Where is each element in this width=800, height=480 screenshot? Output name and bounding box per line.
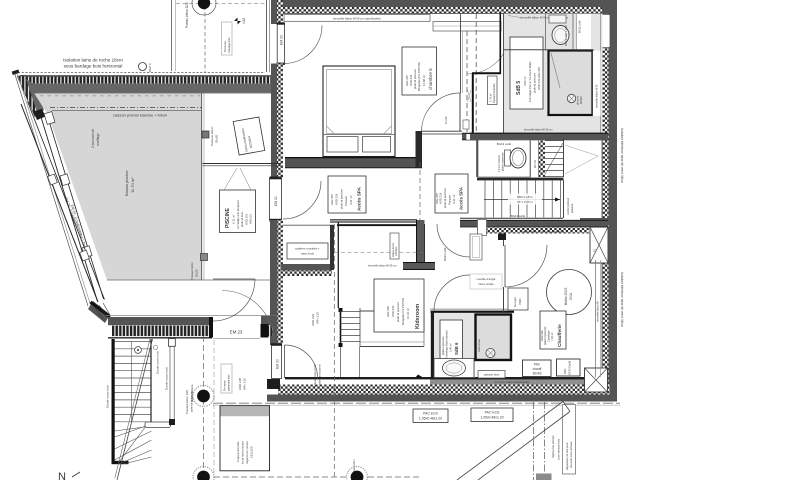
svg-text:EM 22: EM 22 bbox=[280, 35, 284, 45]
svg-text:11.70 m²: 11.70 m² bbox=[130, 177, 135, 193]
svg-text:Groupe: Groupe bbox=[513, 297, 517, 307]
svg-text:BA13 collé: BA13 collé bbox=[497, 142, 512, 146]
svg-text:HSD 235: HSD 235 bbox=[238, 377, 242, 390]
svg-text:12.88 m²: 12.88 m² bbox=[422, 75, 426, 86]
svg-text:EM 23: EM 23 bbox=[230, 330, 243, 335]
svg-text:N: N bbox=[58, 471, 66, 480]
svg-text:recouvrir zone terrasse: recouvrir zone terrasse bbox=[569, 441, 573, 468]
svg-text:152x120: 152x120 bbox=[250, 446, 254, 458]
svg-text:tervueille bâton fill 90 cm: tervueille bâton fill 90 cm bbox=[524, 128, 553, 132]
svg-text:60x46: 60x46 bbox=[533, 372, 542, 376]
svg-text:caisson promat étanche + Miroi: caisson promat étanche + Miroir bbox=[113, 114, 168, 118]
svg-text:HSD 236: HSD 236 bbox=[540, 330, 544, 341]
svg-text:HRv 205: HRv 205 bbox=[386, 306, 390, 317]
svg-text:Garde corps bois: Garde corps bois bbox=[156, 351, 160, 374]
svg-text:16.32 m²: 16.32 m² bbox=[406, 308, 410, 319]
svg-text:Poteaux béton: Poteaux béton bbox=[210, 126, 214, 146]
svg-text:Parquet: Parquet bbox=[344, 196, 348, 206]
svg-text:plafond peinture: plafond peinture bbox=[533, 72, 537, 93]
svg-text:HSD 230: HSD 230 bbox=[391, 305, 395, 317]
svg-text:carré d'eau: carré d'eau bbox=[477, 339, 481, 352]
svg-text:HSD 236: HSD 236 bbox=[335, 193, 339, 205]
svg-text:20x20: 20x20 bbox=[215, 134, 219, 143]
svg-text:Chaufferie: Chaufferie bbox=[557, 324, 562, 347]
svg-text:BA13 collé: BA13 collé bbox=[443, 247, 447, 261]
svg-text:DEP 6: DEP 6 bbox=[148, 63, 152, 72]
svg-text:PAC: PAC bbox=[563, 368, 567, 374]
svg-text:PAC ECS: PAC ECS bbox=[423, 412, 438, 416]
svg-text:4.62: 4.62 bbox=[242, 18, 246, 24]
svg-text:4.80 m²: 4.80 m² bbox=[523, 76, 527, 86]
svg-text:HSD 236: HSD 236 bbox=[409, 74, 413, 86]
svg-text:bardage bois: bardage bois bbox=[227, 37, 231, 53]
svg-text:4.41 m²: 4.41 m² bbox=[349, 195, 353, 205]
svg-text:plafond peinture: plafond peinture bbox=[340, 188, 344, 209]
svg-text:ECS 53x38: ECS 53x38 bbox=[568, 360, 572, 375]
svg-text:HRv 225: HRv 225 bbox=[330, 194, 334, 205]
svg-text:Frappe d'ecolle: Frappe d'ecolle bbox=[236, 441, 240, 462]
svg-text:1.05x0.48x1.20: 1.05x0.48x1.20 bbox=[419, 417, 442, 421]
svg-text:Accès SPA: Accès SPA bbox=[459, 186, 464, 210]
svg-text:3.40 m²: 3.40 m² bbox=[449, 343, 453, 352]
svg-text:combles: combles bbox=[395, 246, 398, 256]
svg-text:Poteau béton D20: Poteau béton D20 bbox=[185, 2, 189, 28]
svg-text:plafond peinture: plafond peinture bbox=[396, 301, 400, 322]
svg-text:plafond peinture: plafond peinture bbox=[443, 187, 447, 208]
svg-text:Isolation intérieure laine de: Isolation intérieure laine de verre 16cm bbox=[620, 128, 624, 183]
svg-text:regard sur verres: regard sur verres bbox=[245, 441, 249, 464]
svg-text:PAC: PAC bbox=[534, 363, 541, 367]
svg-text:Ballon ECS: Ballon ECS bbox=[564, 287, 568, 305]
svg-text:tervueille bâton fill 90: tervueille bâton fill 90 bbox=[596, 84, 599, 108]
svg-text:plafond bois: plafond bois bbox=[240, 211, 244, 227]
svg-text:PISCINE: PISCINE bbox=[225, 207, 231, 228]
svg-text:WC 16: WC 16 bbox=[533, 160, 537, 168]
svg-text:Kidsroom: Kidsroom bbox=[415, 304, 421, 329]
svg-text:patemand bois: patemand bois bbox=[228, 374, 231, 391]
svg-text:reprise mur existant: reprise mur existant bbox=[551, 435, 555, 458]
svg-text:tervueille bâton fill 90 cm: tervueille bâton fill 90 cm bbox=[368, 264, 397, 268]
svg-text:banc bois: banc bois bbox=[301, 252, 314, 256]
svg-text:Garde corps bois: Garde corps bois bbox=[106, 385, 110, 408]
svg-text:PL: PL bbox=[593, 248, 597, 252]
svg-text:Carrelage: Carrelage bbox=[547, 330, 551, 342]
svg-text:Garde corps bois: Garde corps bois bbox=[165, 367, 169, 390]
svg-text:2 bouches de: 2 bouches de bbox=[91, 129, 95, 148]
svg-text:Poteaux béton D20: Poteaux béton D20 bbox=[185, 390, 189, 414]
svg-text:Isolation laine de roche 18cm: Isolation laine de roche 18cm bbox=[63, 58, 123, 63]
svg-text:HRv 215: HRv 215 bbox=[243, 378, 247, 390]
svg-text:HSD 236: HSD 236 bbox=[439, 192, 443, 204]
svg-text:micro-ondes: micro-ondes bbox=[478, 282, 494, 286]
svg-text:patemand paens: patemand paens bbox=[318, 364, 322, 385]
svg-text:7P x 0.25 m: 7P x 0.25 m bbox=[517, 200, 533, 204]
svg-text:chauff: chauff bbox=[533, 367, 542, 371]
svg-text:Moquette (fini COTON): Moquette (fini COTON) bbox=[417, 62, 421, 91]
svg-text:plafond peinture: plafond peinture bbox=[413, 68, 417, 89]
svg-text:Poteaux béton: Poteaux béton bbox=[190, 262, 194, 280]
svg-text:em (pou vrais) superficielles: em (pou vrais) superficielles bbox=[495, 380, 530, 384]
svg-text:zone terrasse bois: zone terrasse bois bbox=[557, 438, 561, 460]
svg-text:Terrasse: Terrasse bbox=[223, 41, 227, 53]
svg-text:HRv 225: HRv 225 bbox=[435, 193, 439, 204]
svg-text:1.05x0.48x1.20: 1.05x0.48x1.20 bbox=[480, 416, 503, 420]
svg-text:20x20: 20x20 bbox=[195, 269, 199, 277]
svg-text:VMC: VMC bbox=[518, 298, 522, 306]
svg-text:SdB 6: SdB 6 bbox=[454, 342, 459, 355]
svg-text:SdB 5: SdB 5 bbox=[516, 81, 522, 95]
svg-text:confort plafond: confort plafond bbox=[566, 197, 570, 215]
svg-text:Carrelage Brick blanche: Carrelage Brick blanche bbox=[445, 330, 449, 358]
svg-text:sous bardage bois horizontal: sous bardage bois horizontal bbox=[64, 64, 123, 69]
svg-text:Bassin piscine: Bassin piscine bbox=[124, 170, 129, 196]
svg-text:Ch 80: Ch 80 bbox=[444, 116, 448, 124]
svg-text:1.76 m²: 1.76 m² bbox=[489, 93, 493, 102]
svg-text:BA 13 collé + 0.10: BA 13 collé + 0.10 bbox=[564, 24, 568, 46]
svg-text:Carrelage Pierre Tur blanc Mat: Carrelage Pierre Tur blanc Matte bbox=[528, 61, 532, 102]
svg-text:peinture: peinture bbox=[570, 203, 574, 213]
svg-text:Accès SPA: Accès SPA bbox=[357, 186, 362, 211]
svg-text:8Mx 0.18 m: 8Mx 0.18 m bbox=[517, 195, 533, 199]
svg-text:500L: 500L bbox=[569, 292, 573, 300]
svg-text:soufflage: soufflage bbox=[96, 133, 100, 146]
svg-text:alignement de mur pour: alignement de mur pour bbox=[565, 442, 569, 470]
svg-text:Isolation intérieure laine de: Isolation intérieure laine de verre 16cm bbox=[620, 272, 624, 327]
svg-text:plafond peinture: plafond peinture bbox=[501, 152, 505, 171]
svg-text:plafond peinture: plafond peinture bbox=[441, 336, 445, 355]
svg-text:chambre 5: chambre 5 bbox=[428, 68, 433, 90]
svg-text:tervueille bâton fill 90 cm su: tervueille bâton fill 90 cm superficiell… bbox=[333, 17, 381, 21]
svg-text:EM 20: EM 20 bbox=[275, 359, 279, 369]
svg-text:Parquet: Parquet bbox=[448, 195, 452, 205]
svg-text:Placard chambre: Placard chambre bbox=[492, 83, 496, 103]
svg-text:HRv (2): HRv (2) bbox=[249, 214, 253, 224]
svg-text:patères murales +: patères murales + bbox=[295, 247, 319, 251]
svg-text:EM 21: EM 21 bbox=[274, 196, 278, 206]
svg-text:PAC ECS: PAC ECS bbox=[485, 411, 500, 415]
svg-text:Moquette fini COTON: Moquette fini COTON bbox=[401, 298, 405, 325]
svg-text:caisson tech: caisson tech bbox=[484, 373, 500, 377]
svg-text:4.41 m²: 4.41 m² bbox=[452, 194, 456, 204]
svg-text:local tech piscine: local tech piscine bbox=[241, 441, 245, 464]
svg-text:7.30 m²: 7.30 m² bbox=[550, 332, 554, 341]
svg-text:tervueille bâton fill: tervueille bâton fill bbox=[596, 301, 600, 322]
svg-text:grille caillebotis: grille caillebotis bbox=[190, 384, 194, 402]
svg-text:tervueille bâton fill 90 cm su: tervueille bâton fill 90 cm superficiell… bbox=[520, 230, 565, 234]
svg-text:90x90: 90x90 bbox=[579, 96, 583, 104]
svg-text:BA13 collé: BA13 collé bbox=[578, 20, 582, 33]
svg-text:Terrasse: Terrasse bbox=[223, 380, 227, 391]
svg-text:HSD 236 HRv 225: HSD 236 HRv 225 bbox=[537, 67, 541, 90]
svg-text:meuble d'angle: meuble d'angle bbox=[477, 277, 496, 281]
svg-text:1.11 m² Percel: 1.11 m² Percel bbox=[497, 155, 501, 172]
svg-text:HRv 210: HRv 210 bbox=[316, 312, 320, 324]
svg-text:Poteau béton D20: Poteau béton D20 bbox=[313, 364, 317, 387]
svg-text:HRv 225: HRv 225 bbox=[405, 75, 409, 86]
svg-text:HSD 223: HSD 223 bbox=[311, 313, 315, 326]
svg-text:BA13 collé: BA13 collé bbox=[511, 214, 526, 218]
svg-text:6.11 m²: 6.11 m² bbox=[232, 215, 236, 224]
